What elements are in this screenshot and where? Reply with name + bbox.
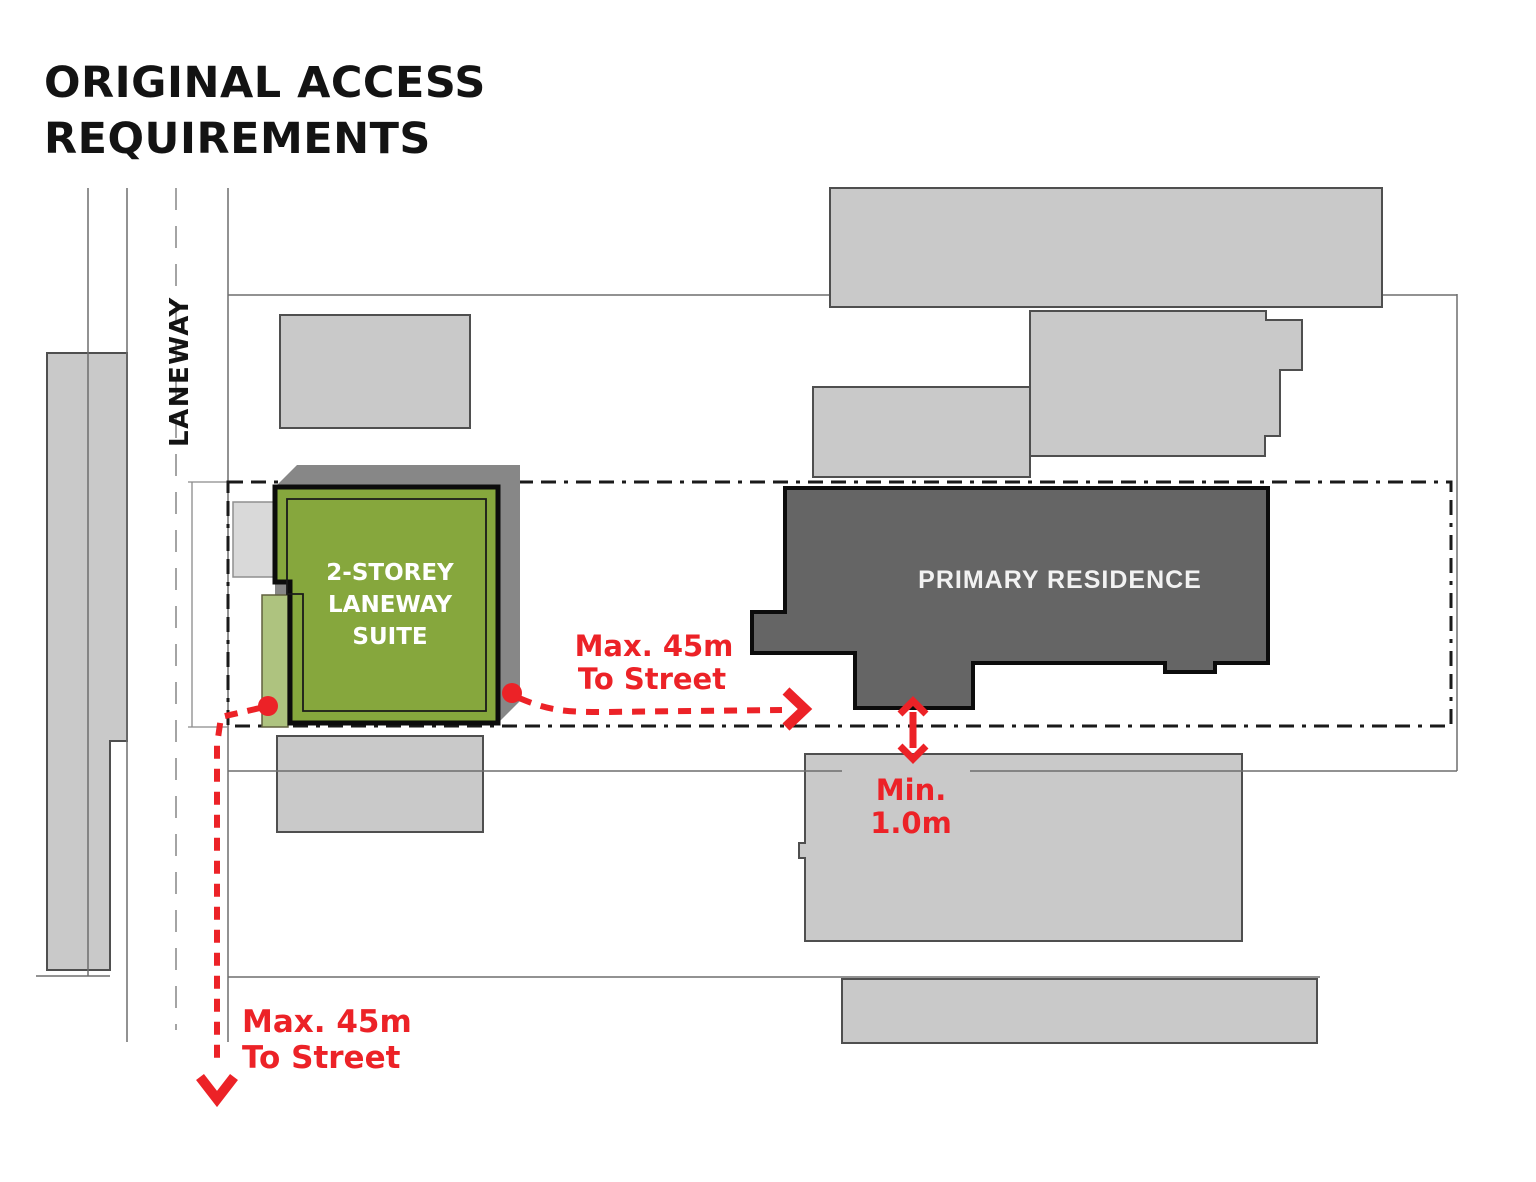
laneway-label: LANEWAY xyxy=(165,296,195,447)
building-south-of-suite xyxy=(277,736,483,832)
suite-label-line-2: LANEWAY xyxy=(328,592,452,618)
building-bottom-right xyxy=(842,979,1317,1043)
laneway-frontage-bracket xyxy=(188,482,228,727)
building-south-of-residence xyxy=(799,754,1242,941)
access-point-lane-dot xyxy=(258,696,278,716)
diagram-title-line-1: ORIGINAL ACCESS xyxy=(44,58,486,108)
max-45m-east-arrowhead xyxy=(786,691,805,727)
laneway-suite: 2-STOREY LANEWAY SUITE xyxy=(233,465,520,727)
max-45m-south-label-line-2: To Street xyxy=(242,1040,401,1076)
suite-label-line-1: 2-STOREY xyxy=(326,560,454,586)
min-setback-label-line-1: Min. xyxy=(876,773,946,807)
building-top-right xyxy=(830,188,1382,307)
max-45m-south-label-line-1: Max. 45m xyxy=(242,1004,412,1040)
building-west-neighbour xyxy=(47,353,127,970)
building-north-of-residence xyxy=(813,387,1030,477)
residence-label: PRIMARY RESIDENCE xyxy=(918,566,1202,594)
diagram-title-line-2: REQUIREMENTS xyxy=(44,114,431,164)
suite-side-pad xyxy=(233,502,275,577)
min-setback-label-line-2: 1.0m xyxy=(870,806,952,840)
suite-label-line-3: SUITE xyxy=(352,624,427,650)
max-45m-east-path xyxy=(519,698,782,712)
site-plan-diagram: 2-STOREY LANEWAY SUITE PRIMARY RESIDENCE… xyxy=(0,0,1536,1182)
residence-footprint xyxy=(752,488,1268,708)
max-45m-east-label-line-2: To Street xyxy=(578,662,726,696)
max-45m-south-arrowhead xyxy=(200,1077,234,1099)
building-north-of-suite xyxy=(280,315,470,428)
primary-residence: PRIMARY RESIDENCE xyxy=(752,488,1268,708)
max-45m-east-label-line-1: Max. 45m xyxy=(575,629,734,663)
building-northeast-stepped xyxy=(1030,311,1302,456)
